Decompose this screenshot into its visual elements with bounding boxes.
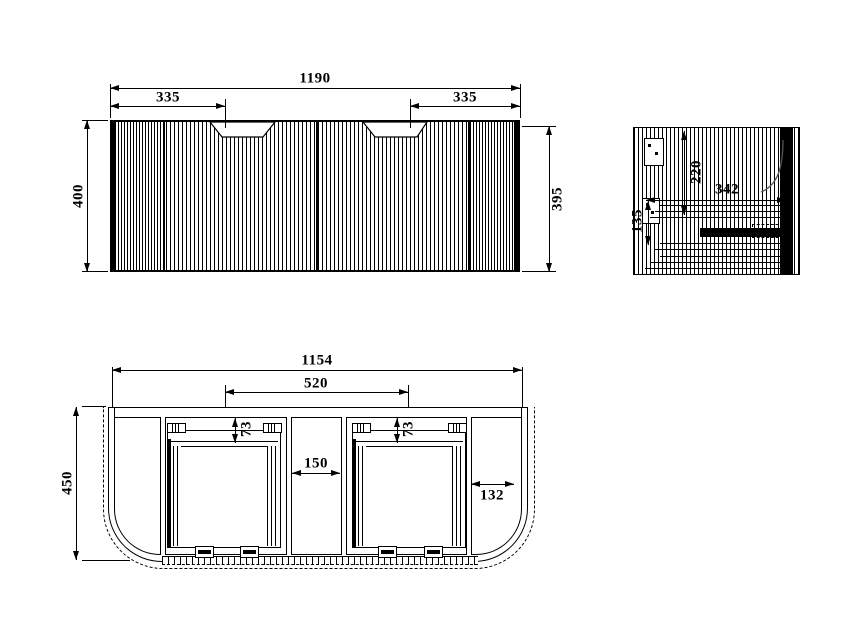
bracket-ticks <box>172 424 179 432</box>
bottom-overall-depth-dim: 450 <box>61 471 76 495</box>
bottom-basin-span-dim: 520 <box>304 377 328 392</box>
arrow-left-icon <box>471 481 480 487</box>
arrow-up-icon <box>394 418 400 427</box>
arrow-down-icon <box>394 434 400 443</box>
wall-bracket-upper <box>644 138 664 166</box>
arrow-right-icon <box>511 85 520 91</box>
drawer-slide-edge <box>168 439 171 547</box>
arrow-right-icon <box>505 481 514 487</box>
clip-bar <box>198 550 211 554</box>
arrow-down-icon <box>232 434 238 443</box>
extension-line <box>225 99 226 128</box>
bracket-ticks <box>453 424 460 432</box>
arrow-right-icon <box>777 197 786 203</box>
arrow-left-icon <box>410 103 419 109</box>
arrow-right-icon <box>216 103 225 109</box>
back-rail-line <box>114 417 522 418</box>
arrow-right-icon <box>331 470 340 476</box>
extension-line <box>408 385 409 407</box>
extension-line <box>522 367 523 407</box>
dim-line <box>76 407 77 560</box>
compartment-wall <box>286 417 292 555</box>
dim-line <box>646 200 786 201</box>
slide-bracket <box>448 423 467 433</box>
arrow-right-icon <box>399 389 408 395</box>
clip-bar <box>427 550 440 554</box>
extension-line <box>520 84 521 118</box>
arrow-up-icon <box>73 407 79 416</box>
drawer-slide-rails <box>267 446 279 546</box>
dim-line <box>684 131 685 215</box>
arrow-up-icon <box>232 418 238 427</box>
clip-bar <box>243 550 256 554</box>
drawer-slide-edge <box>353 439 356 547</box>
side-lower-section-dim: 135 <box>631 209 646 233</box>
arrow-up-icon <box>681 131 687 140</box>
technical-drawing-canvas: 1190 335 335 400 395 <box>0 0 857 624</box>
bottom-inner-width-dim: 1154 <box>301 354 332 369</box>
drawer-rail-line <box>170 446 278 447</box>
arrow-left-icon <box>110 103 119 109</box>
front-overall-width-dim: 1190 <box>299 72 330 87</box>
arrow-left-icon <box>292 470 301 476</box>
drawer-box-left <box>167 430 281 548</box>
arrow-left-icon <box>110 85 119 91</box>
drawer-rail-line <box>170 441 278 442</box>
side-depth-dim: 342 <box>715 183 739 198</box>
dim-line <box>225 392 408 393</box>
arrow-down-icon <box>546 263 552 272</box>
arrow-down-icon <box>73 551 79 560</box>
handle-notch-right <box>363 122 427 137</box>
dim-line <box>112 370 522 371</box>
mounting-clip <box>240 546 259 558</box>
screw-icon <box>648 144 651 147</box>
drawer-rail-line <box>355 446 463 447</box>
front-panel-height-dim: 395 <box>551 187 566 211</box>
mounting-clip <box>424 546 443 558</box>
dim-line <box>87 120 88 272</box>
bottom-right-inset-dim: 73 <box>402 421 417 437</box>
slide-bracket <box>263 423 282 433</box>
arrow-up-icon <box>546 126 552 135</box>
arrow-up-icon <box>84 120 90 129</box>
front-handle-notches <box>110 120 520 150</box>
arrow-left-icon <box>225 389 234 395</box>
arrow-down-icon <box>681 206 687 215</box>
bottom-center-gap-dim: 150 <box>304 457 328 472</box>
extension-line <box>82 406 106 407</box>
mounting-clip <box>378 546 397 558</box>
front-overall-height-dim: 400 <box>72 184 87 208</box>
bracket-ticks <box>357 424 364 432</box>
bottom-side-clearance-dim: 132 <box>480 489 504 504</box>
dim-line <box>410 106 520 107</box>
front-right-offset-dim: 335 <box>453 91 477 106</box>
bottom-left-inset-dim: 73 <box>240 421 255 437</box>
extension-line <box>82 560 130 561</box>
handle-notch-left <box>210 122 275 137</box>
arrow-right-icon <box>513 367 522 373</box>
clip-bar <box>381 550 394 554</box>
mounting-clip <box>195 546 214 558</box>
screw-icon <box>655 152 658 155</box>
screw-icon <box>651 211 654 214</box>
arrow-down-icon <box>645 236 651 245</box>
bracket-ticks <box>268 424 275 432</box>
drawer-rail-line <box>355 441 463 442</box>
front-left-offset-dim: 335 <box>156 91 180 106</box>
extension-line <box>112 367 113 407</box>
drawer-slide-rails <box>452 446 464 546</box>
drawer-box-right <box>352 430 466 548</box>
arrow-down-icon <box>84 263 90 272</box>
drawer-curve <box>740 127 800 275</box>
arrow-up-icon <box>645 201 651 210</box>
arrow-right-icon <box>511 103 520 109</box>
dim-line <box>110 106 225 107</box>
compartment-wall <box>341 417 347 555</box>
slide-bracket <box>352 423 371 433</box>
arrow-left-icon <box>112 367 121 373</box>
slide-bracket <box>167 423 186 433</box>
compartment-wall <box>160 417 166 555</box>
side-bracket-drop-dim: 220 <box>690 160 705 184</box>
